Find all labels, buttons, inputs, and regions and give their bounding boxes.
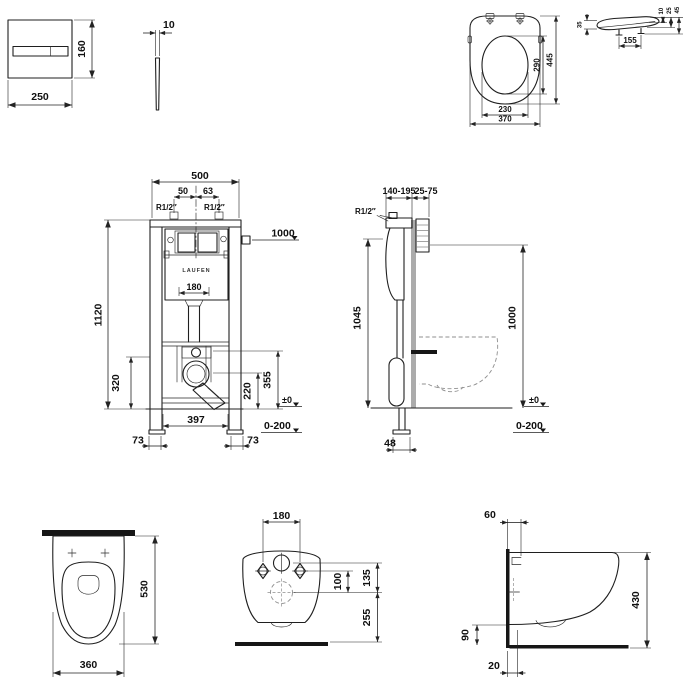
dim-seat-overall-length: 445 <box>546 53 555 67</box>
dim-trap-center: 320 <box>110 374 122 392</box>
dim-seat-ring-length: 290 <box>533 58 542 72</box>
wc-bowl-hidden-outline <box>419 337 498 389</box>
dim-fixing-height: 355 <box>262 371 274 389</box>
dimension-lines <box>470 16 560 127</box>
frame-top-bracket <box>386 218 412 228</box>
dim-foot-right: 73 <box>247 435 259 447</box>
inspection-opening <box>175 231 219 253</box>
outlet-elbow <box>193 383 225 410</box>
dim-wall-offset: 20 <box>488 660 500 672</box>
wc-rear-view: 180 100 135 255 <box>235 510 382 646</box>
floor-line <box>235 642 328 646</box>
flush-distributor <box>78 576 99 595</box>
dim-top-fixing: 60 <box>484 509 496 521</box>
dim-seat-ring-width: 230 <box>498 105 512 114</box>
frame-rails <box>150 227 241 430</box>
dim-foot-left: 73 <box>132 435 144 447</box>
dim-seat-rear-height: 35 <box>578 21 584 28</box>
dimension-lines <box>472 519 651 677</box>
dim-frame-width: 500 <box>191 170 209 182</box>
label-floor-range-side: 0-200 <box>516 420 543 432</box>
foot-plate <box>393 430 410 434</box>
dim-plate-height: 160 <box>76 40 88 58</box>
technical-drawing-canvas: 160 250 10 2 <box>0 0 700 700</box>
outlet-shroud <box>271 623 292 628</box>
label-floor-range: 0-200 <box>264 420 291 432</box>
dimension-lines <box>363 194 549 453</box>
dim-foot-depth: 48 <box>384 438 396 450</box>
dim-wc-width: 360 <box>80 659 98 671</box>
dim-wc-length: 530 <box>139 580 151 598</box>
wc-side-outline <box>510 553 619 625</box>
flush-plate-front-view: 160 250 <box>8 20 95 108</box>
frame-front-view: LAUFEN <box>93 170 303 450</box>
flush-plate-outline <box>8 20 72 78</box>
dim-inlet-offset: 135 <box>361 569 373 587</box>
fixing-hole-right <box>293 564 308 579</box>
cistern-port-right <box>221 236 227 242</box>
frame-top-rail <box>150 220 241 227</box>
cistern-profile <box>386 228 404 300</box>
dim-outlet-center: 220 <box>242 382 254 400</box>
label-floor-level-side: ±0 <box>529 395 539 405</box>
dim-hinge-spacing: 155 <box>623 36 637 45</box>
seat-top-view: 230 370 290 445 <box>468 14 560 128</box>
dim-outlet-height: 255 <box>361 609 373 627</box>
dim-supply-height: 1000 <box>271 228 295 240</box>
dim-plate-width: 250 <box>31 91 49 103</box>
dimension-lines <box>53 536 159 677</box>
bowl-rim-inner <box>62 562 115 638</box>
pipe-clamp-box <box>182 347 211 358</box>
flush-bend-port <box>192 348 201 357</box>
wc-bowl-outline <box>53 536 124 644</box>
flush-valve-right <box>198 233 217 252</box>
cistern-port-left <box>168 237 174 243</box>
dimension-lines <box>8 20 95 108</box>
dim-wc-height: 430 <box>630 591 642 609</box>
outlet-bend-inner <box>187 365 205 383</box>
dim-offset-left: 50 <box>178 186 188 196</box>
dim-plate-thickness: 10 <box>163 19 175 31</box>
wc-side-view: 60 430 90 20 <box>460 509 652 677</box>
seat-side-view: 155 35 10 25 45 <box>578 6 684 49</box>
outlet-elbow-line <box>208 388 219 398</box>
label-floor-level: ±0 <box>282 395 292 405</box>
seat-lid-outline <box>470 16 540 104</box>
foot-right <box>227 430 243 434</box>
fixing-hole-left <box>256 564 271 579</box>
seat-fixing-marks <box>68 549 109 557</box>
dim-wall-finish: 25-75 <box>414 186 437 196</box>
foot-left <box>149 430 165 434</box>
dim-seat-h-top: 10 <box>659 7 665 14</box>
flush-pipe-flange <box>185 300 203 306</box>
wc-fixing-rods <box>411 350 437 354</box>
dim-offset-right: 63 <box>203 186 213 196</box>
dimension-lines <box>143 30 172 56</box>
dim-hole-spacing: 180 <box>273 510 291 522</box>
frame-side-view: 140-195 25-75 R1/2″ 1045 1000 ±0 0-200 4… <box>352 186 550 453</box>
dim-seat-h-total: 45 <box>675 6 681 13</box>
dim-seat-h-mid: 25 <box>667 7 673 14</box>
label-conn-right: R1/2″ <box>204 203 225 212</box>
wall-line <box>506 549 510 648</box>
dim-leg-span: 397 <box>187 414 205 426</box>
seat-ring-opening <box>482 36 528 94</box>
dim-outlet-offset: 100 <box>332 573 344 591</box>
dim-frame-height: 1120 <box>93 303 105 326</box>
dim-bend-width: 180 <box>186 282 201 292</box>
wall-section <box>411 220 416 408</box>
flush-plate-profile <box>156 58 160 110</box>
label-conn-left: R1/2″ <box>156 203 177 212</box>
dim-bottom-height: 90 <box>460 629 472 641</box>
label-conn: R1/2″ <box>355 207 376 216</box>
water-supply-stub <box>242 236 250 244</box>
dim-supply-height-side: 1000 <box>507 306 519 330</box>
flush-plate-recess <box>416 219 429 252</box>
dim-frame-depth: 140-195 <box>382 186 415 196</box>
brand-logo: LAUFEN <box>182 268 210 274</box>
dim-seat-overall-width: 370 <box>498 115 512 124</box>
wall-fixing-hidden <box>509 578 520 603</box>
hinge-pins <box>616 29 644 36</box>
dim-frame-side-height: 1045 <box>352 306 364 330</box>
seat-fixing-mark <box>512 558 521 565</box>
flush-buttons <box>13 47 68 57</box>
flush-plate-side-view: 10 <box>143 19 175 110</box>
wall-line <box>42 530 135 536</box>
outlet-hole-hidden <box>268 579 296 607</box>
outlet-bend-profile <box>389 358 404 406</box>
wc-top-view: 530 360 <box>42 530 159 677</box>
floor-line <box>510 645 629 649</box>
flush-valve-left <box>178 233 195 252</box>
